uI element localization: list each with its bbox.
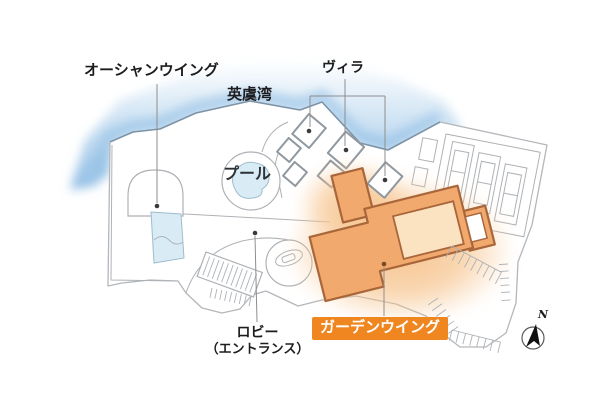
lobby-label-line1: ロビー xyxy=(185,324,330,341)
villa-dot-3 xyxy=(383,178,388,183)
garden-wing-label: ガーデンウイング xyxy=(312,317,448,340)
lobby-label: ロビー （エントランス） xyxy=(185,324,330,356)
ago-bay-label: 英虞湾 xyxy=(227,86,272,104)
garden-wing-dot xyxy=(382,262,387,267)
villa-dot-2 xyxy=(344,148,349,153)
resort-map: オーシャンウイング 英虞湾 ヴィラ プール ロビー （エントランス） ガーデンウ… xyxy=(0,0,615,410)
ocean-wing-dot xyxy=(155,204,160,209)
villa-label: ヴィラ xyxy=(322,59,364,76)
lobby-label-line2: （エントランス） xyxy=(185,341,330,357)
compass-north-label: N xyxy=(538,308,548,321)
lobby-dot xyxy=(253,231,258,236)
ocean-wing-pool xyxy=(151,212,184,263)
compass-icon xyxy=(522,324,544,349)
pool-label: プール xyxy=(223,165,271,184)
villa-dot-1 xyxy=(307,129,312,134)
ocean-wing-label: オーシャンウイング xyxy=(84,62,219,80)
